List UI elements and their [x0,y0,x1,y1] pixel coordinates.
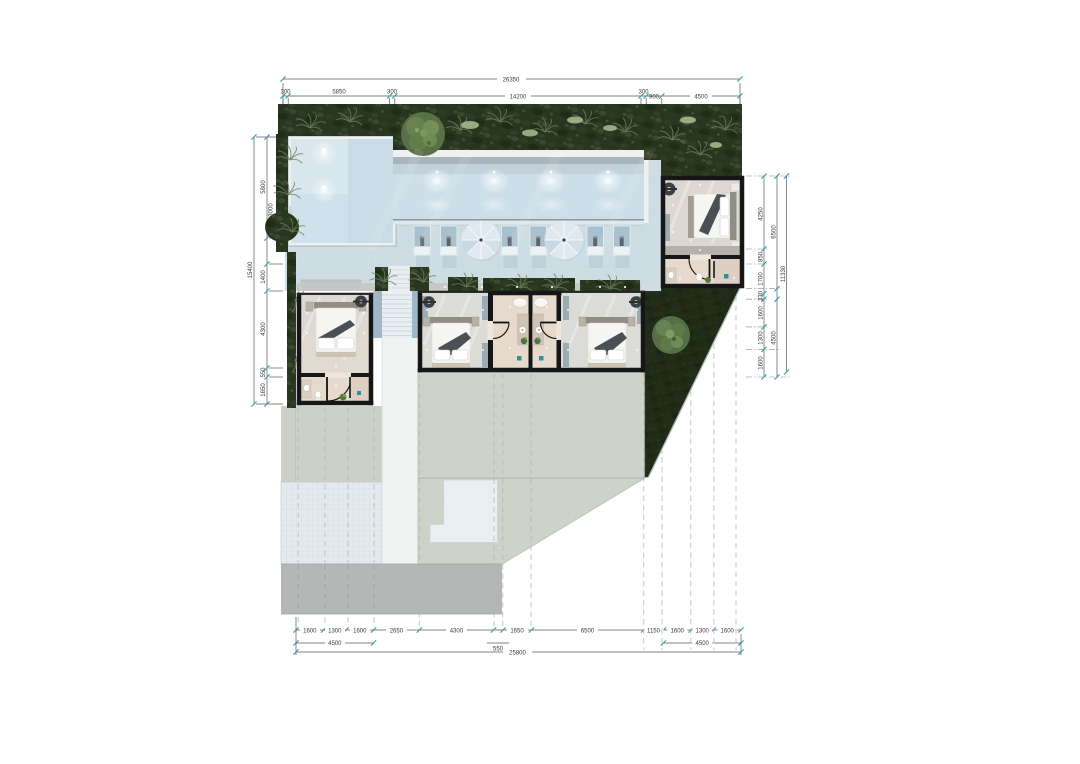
svg-text:5800: 5800 [261,180,267,194]
svg-text:550: 550 [261,367,267,378]
svg-text:1700: 1700 [759,272,765,286]
svg-text:4500: 4500 [772,331,778,345]
svg-text:4500: 4500 [328,641,342,647]
svg-text:11330: 11330 [781,265,787,282]
svg-text:1300: 1300 [328,628,342,634]
svg-text:1600: 1600 [721,628,735,634]
svg-text:1150: 1150 [647,628,661,634]
svg-text:26350: 26350 [503,77,520,83]
svg-text:300: 300 [280,90,291,96]
svg-text:14200: 14200 [510,94,527,100]
svg-text:1600: 1600 [303,628,317,634]
svg-text:850: 850 [759,251,765,262]
svg-text:1600: 1600 [759,356,765,370]
svg-text:4500: 4500 [696,641,710,647]
svg-text:4300: 4300 [261,322,267,336]
svg-text:900: 900 [649,94,660,100]
svg-text:4300: 4300 [450,628,464,634]
svg-text:4250: 4250 [759,207,765,221]
svg-text:300: 300 [638,90,649,96]
svg-text:330: 330 [759,290,765,301]
svg-text:2650: 2650 [390,628,404,634]
svg-text:6500: 6500 [581,628,595,634]
svg-text:1600: 1600 [759,306,765,320]
svg-text:1300: 1300 [696,628,710,634]
svg-text:1650: 1650 [261,383,267,397]
svg-text:1300: 1300 [759,331,765,345]
svg-text:6500: 6500 [772,225,778,239]
svg-text:5850: 5850 [332,90,346,96]
svg-text:4500: 4500 [694,94,708,100]
svg-text:1600: 1600 [353,628,367,634]
svg-text:1600: 1600 [671,628,685,634]
svg-text:25800: 25800 [509,650,526,656]
svg-text:300: 300 [387,90,398,96]
svg-text:1400: 1400 [261,270,267,284]
svg-text:15400: 15400 [248,261,254,278]
svg-text:1650: 1650 [510,628,524,634]
